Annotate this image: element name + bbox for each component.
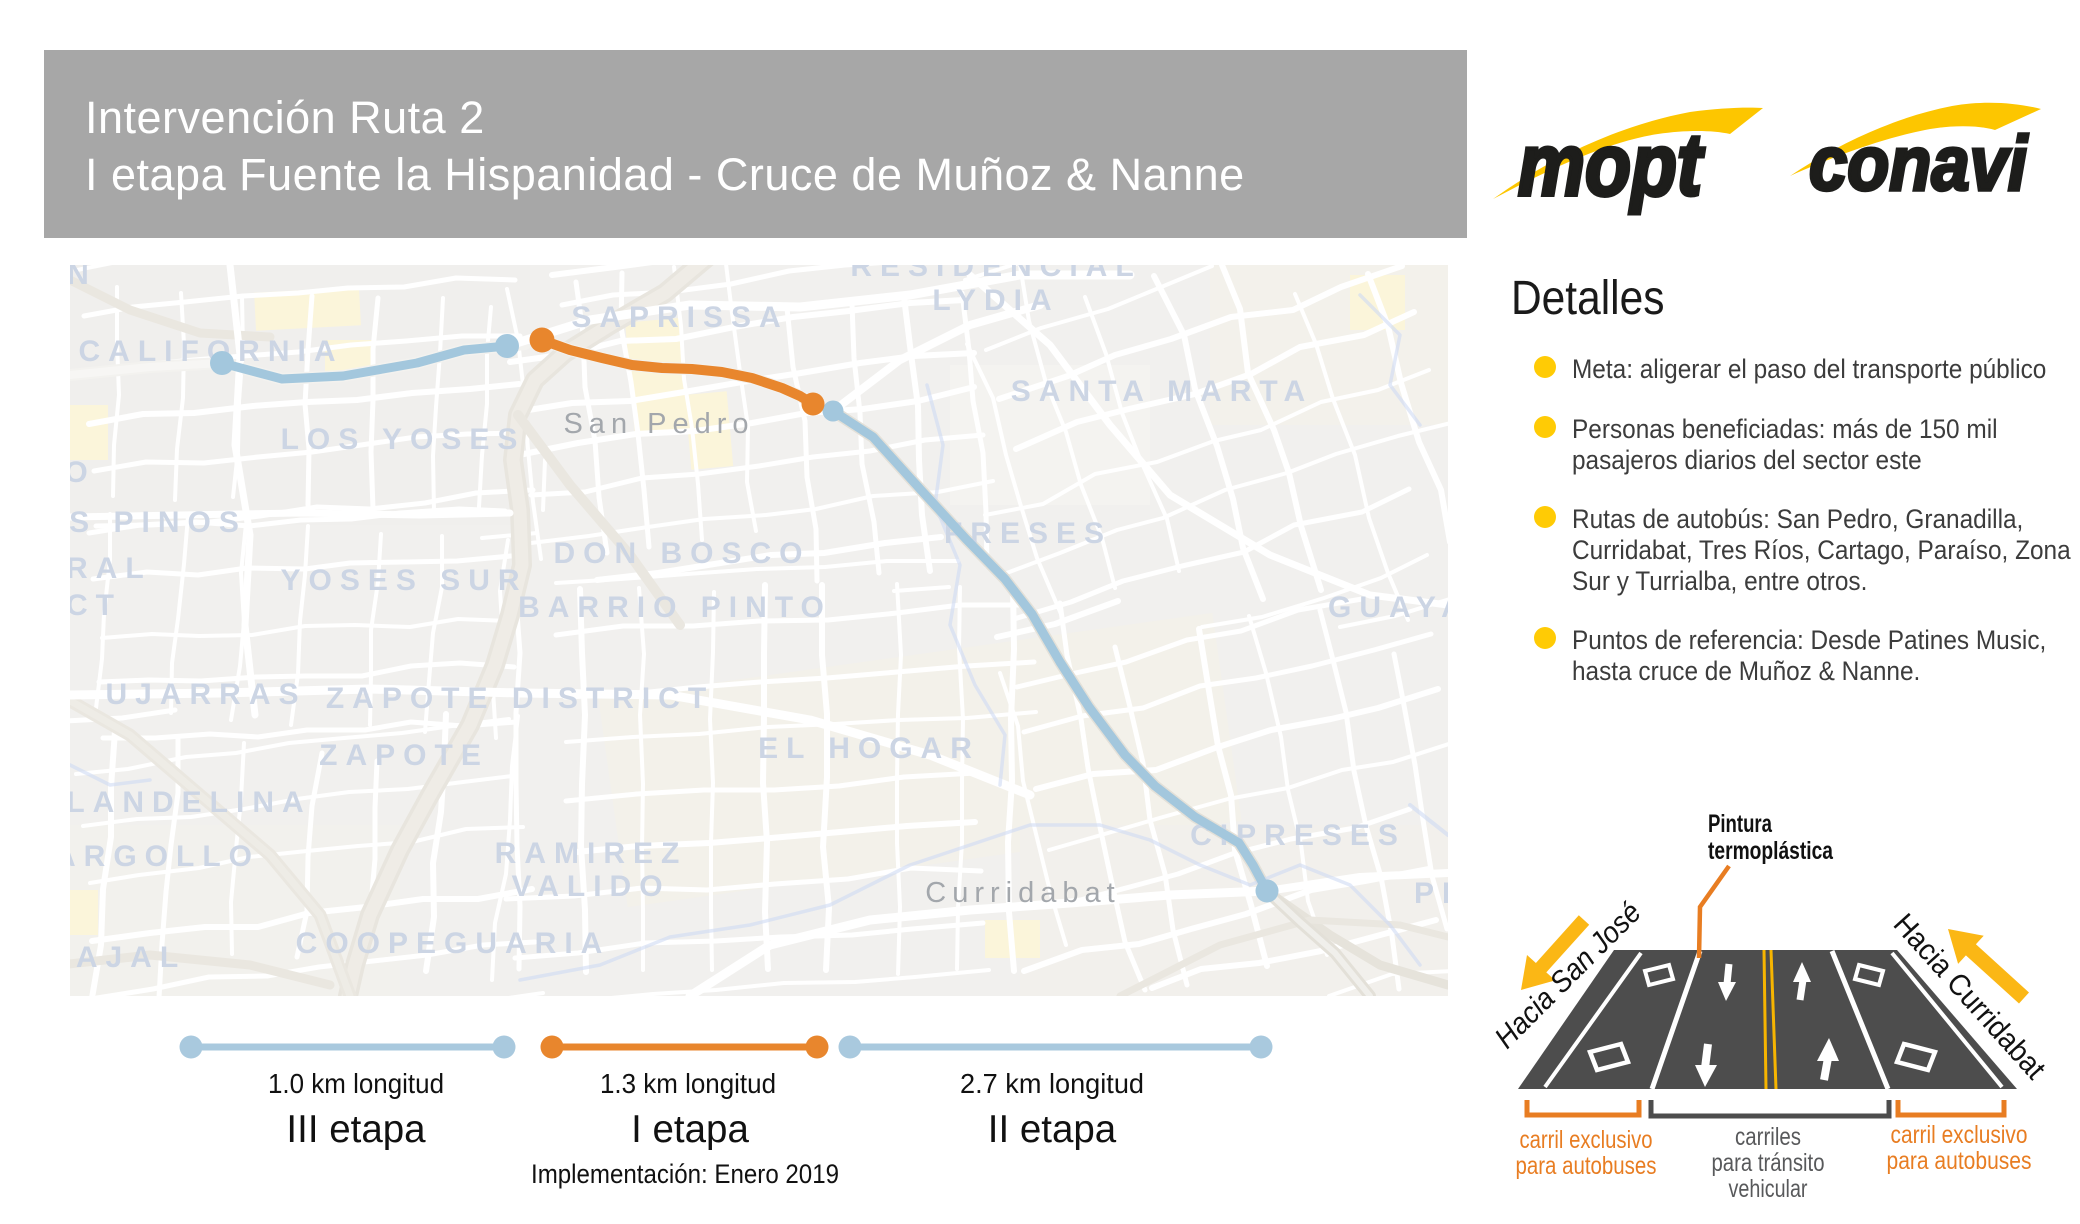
svg-text:DON BOSCO: DON BOSCO [553,537,810,570]
svg-text:carril exclusivo: carril exclusivo [1891,1121,2028,1149]
svg-text:PIN: PIN [1414,877,1448,910]
svg-text:II etapa: II etapa [988,1108,1117,1151]
svg-text:EL HOGAR: EL HOGAR [758,732,980,765]
svg-text:N: N [70,265,97,291]
svg-text:mopt: mopt [1518,115,1705,214]
svg-text:para autobuses: para autobuses [1516,1152,1657,1180]
svg-text:vehicular: vehicular [1729,1175,1808,1203]
svg-text:III etapa: III etapa [286,1108,426,1151]
svg-text:YOSES SUR: YOSES SUR [280,564,527,597]
svg-text:LYDIA: LYDIA [932,284,1059,317]
svg-text:RESIDENCIAL: RESIDENCIAL [850,265,1141,283]
svg-text:SANTA MARTA: SANTA MARTA [1011,375,1313,408]
svg-text:LOS YOSES: LOS YOSES [281,423,526,456]
svg-text:Curridabat: Curridabat [925,877,1120,909]
svg-text:2.7 km longitud: 2.7 km longitud [960,1068,1144,1099]
svg-text:1.3 km longitud: 1.3 km longitud [600,1068,776,1099]
svg-text:SAPRISSA: SAPRISSA [571,301,788,334]
svg-text:AJAL: AJAL [76,941,186,974]
svg-text:S PINOS: S PINOS [70,506,247,539]
svg-text:LANDELINA: LANDELINA [70,786,312,819]
svg-text:GUAYA: GUAYA [1328,591,1448,624]
svg-text:ZAPOTE DISTRICT: ZAPOTE DISTRICT [326,682,714,715]
svg-text:1.0 km longitud: 1.0 km longitud [268,1068,444,1099]
svg-text:carriles: carriles [1735,1123,1801,1151]
svg-text:UJARRAS: UJARRAS [105,678,306,711]
svg-text:carril exclusivo: carril exclusivo [1520,1126,1653,1154]
svg-text:COOPEGUARIA: COOPEGUARIA [296,927,611,960]
svg-text:CT: CT [70,589,122,622]
svg-text:RAMIREZ: RAMIREZ [495,837,688,870]
svg-text:BARRIO PINTO: BARRIO PINTO [518,591,832,624]
svg-text:Pintura: Pintura [1708,810,1773,838]
svg-text:I etapa: I etapa [631,1108,749,1151]
svg-text:Implementación: Enero 2019: Implementación: Enero 2019 [531,1159,839,1189]
svg-text:termoplástica: termoplástica [1708,837,1834,865]
svg-text:para tránsito: para tránsito [1712,1149,1825,1177]
svg-text:VALIDO: VALIDO [511,870,670,903]
svg-text:O: O [70,456,96,489]
svg-text:conavi: conavi [1809,121,2028,207]
svg-text:San Pedro: San Pedro [563,408,754,440]
svg-text:ARGOLLO: ARGOLLO [70,840,260,873]
svg-text:para autobuses: para autobuses [1887,1147,2032,1175]
svg-text:ZAPOTE: ZAPOTE [319,739,489,772]
svg-text:RAL: RAL [70,552,152,585]
